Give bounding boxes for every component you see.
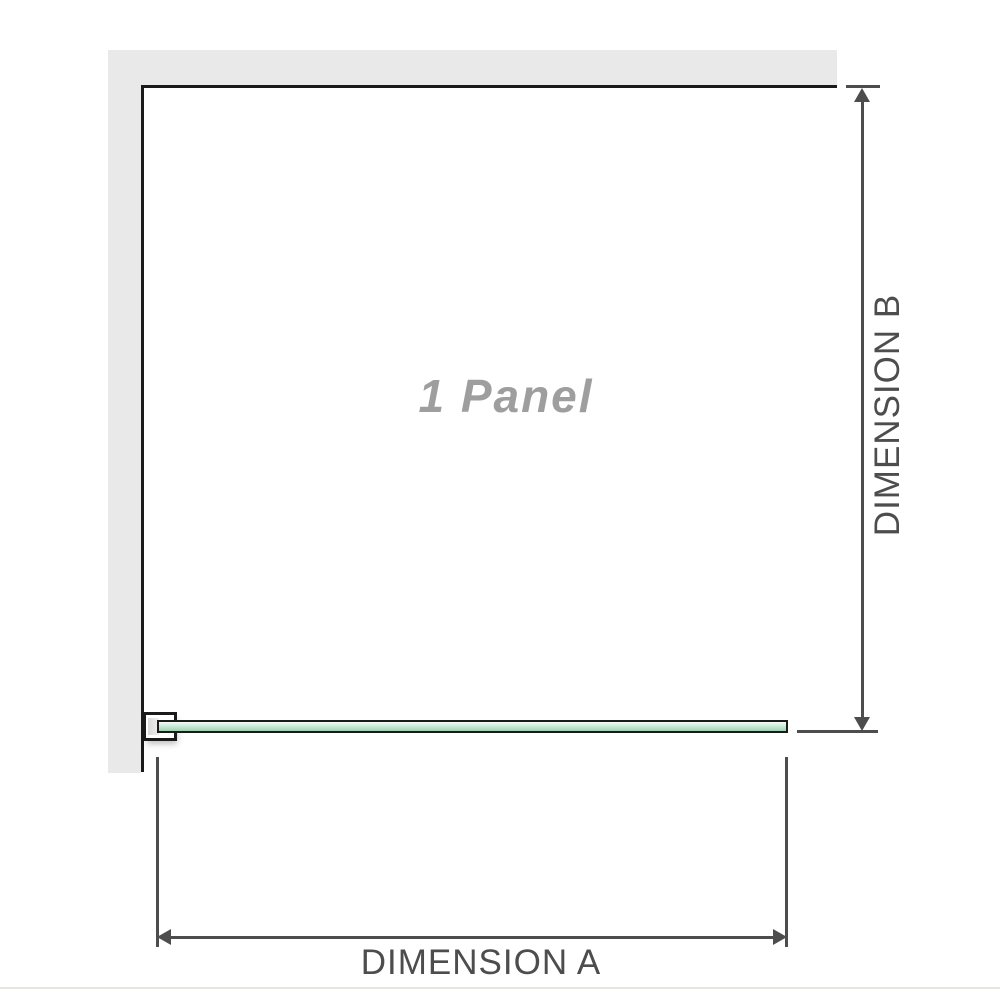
dimension-a-left-extension — [156, 757, 159, 947]
glass-panel — [157, 720, 788, 733]
wall-top — [108, 50, 837, 85]
shower-panel-diagram: 1 Panel DIMENSION B DIMENSION A — [0, 0, 1000, 1000]
frame-top-line — [141, 85, 837, 88]
dimension-a-line — [167, 936, 777, 939]
wall-left — [108, 50, 141, 773]
dimension-a-arrow-left-icon — [157, 929, 171, 945]
dimension-a-label: DIMENSION A — [361, 943, 601, 983]
dimension-b-arrow-up-icon — [854, 88, 870, 102]
bottom-divider — [0, 987, 1000, 989]
dimension-a-arrow-right-icon — [773, 929, 787, 945]
dimension-a-right-extension — [785, 757, 788, 947]
dimension-b-line — [861, 98, 864, 720]
frame-left-line — [141, 85, 144, 772]
dimension-b-arrow-down-icon — [854, 717, 870, 731]
dimension-b-label: DIMENSION B — [868, 294, 908, 536]
panel-count-label: 1 Panel — [418, 369, 593, 423]
